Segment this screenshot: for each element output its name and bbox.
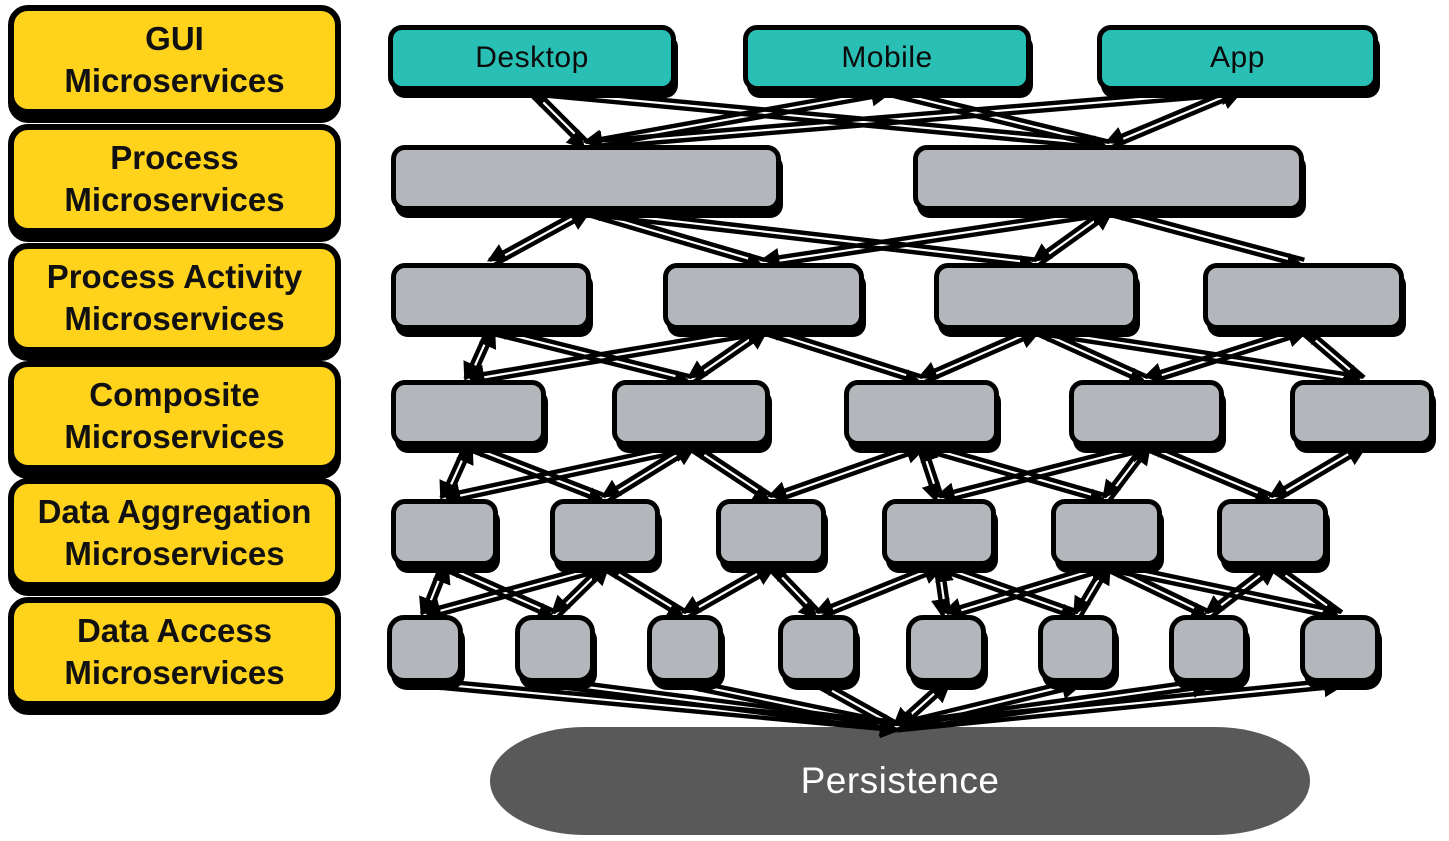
node-e2 (515, 615, 595, 683)
layer-label-data-access: Data Access Microservices (8, 597, 341, 707)
node-d5 (1051, 499, 1162, 566)
node-a4 (1203, 263, 1404, 330)
microservices-architecture-diagram: GUI MicroservicesProcess MicroservicesPr… (0, 0, 1449, 841)
node-a1 (391, 263, 591, 330)
node-a3 (934, 263, 1138, 330)
node-c4 (1069, 380, 1224, 446)
node-e6 (1038, 615, 1117, 683)
layer-label-gui: GUI Microservices (8, 5, 341, 115)
node-p2 (913, 145, 1304, 211)
node-a2 (663, 263, 864, 330)
layer-label-process: Process Microservices (8, 124, 341, 234)
layer-label-process-activity: Process Activity Microservices (8, 243, 341, 353)
node-p1 (391, 145, 781, 211)
node-d2 (550, 499, 660, 566)
node-mobile: Mobile (743, 25, 1031, 91)
node-c3 (844, 380, 999, 446)
node-desktop: Desktop (388, 25, 676, 91)
node-e3 (647, 615, 723, 683)
layer-label-composite: Composite Microservices (8, 361, 341, 471)
node-c2 (612, 380, 770, 446)
node-c1 (391, 380, 546, 446)
node-d6 (1217, 499, 1328, 566)
node-d3 (716, 499, 826, 566)
node-e1 (387, 615, 463, 683)
node-c5 (1290, 380, 1434, 446)
layer-label-data-aggregation: Data Aggregation Microservices (8, 478, 341, 588)
node-e4 (778, 615, 858, 683)
node-d1 (391, 499, 498, 566)
node-e5 (906, 615, 986, 683)
node-app: App (1097, 25, 1378, 91)
node-d4 (882, 499, 996, 566)
node-e8 (1300, 615, 1380, 683)
node-e7 (1169, 615, 1248, 683)
